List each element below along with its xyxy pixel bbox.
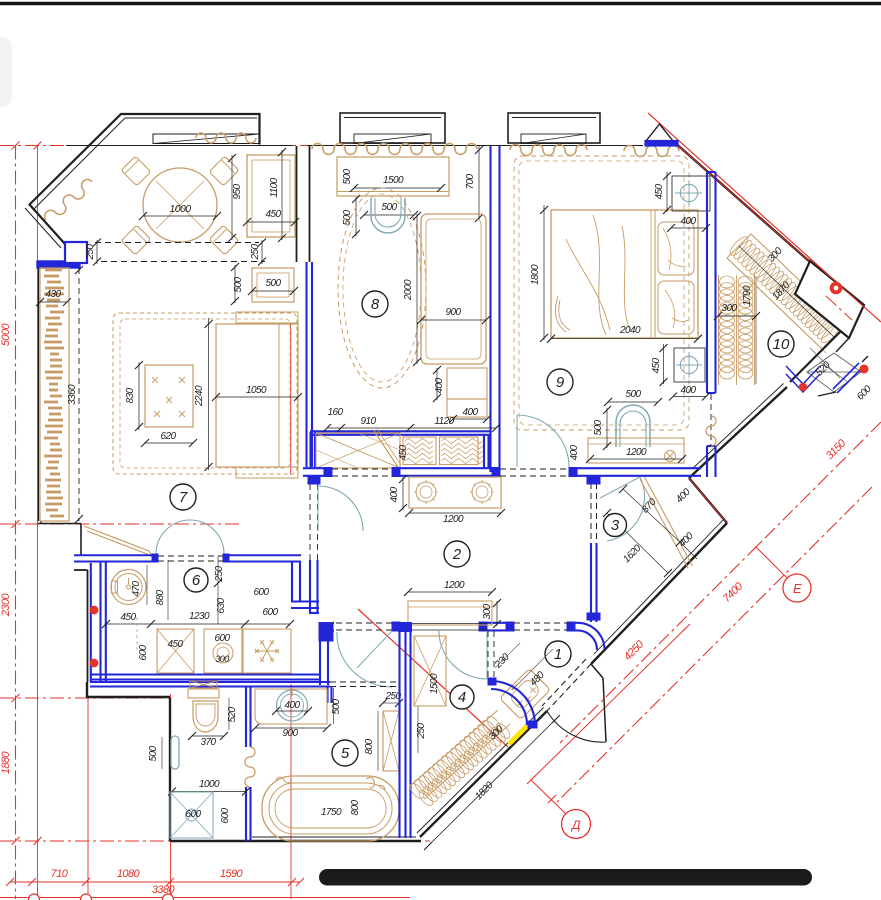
svg-text:7: 7 bbox=[179, 489, 188, 506]
svg-text:500: 500 bbox=[342, 210, 353, 226]
svg-text:1000: 1000 bbox=[199, 779, 220, 790]
svg-text:300: 300 bbox=[721, 303, 737, 314]
svg-text:400: 400 bbox=[680, 385, 696, 396]
svg-text:1750: 1750 bbox=[321, 807, 342, 818]
svg-text:2240: 2240 bbox=[194, 385, 205, 407]
svg-text:600: 600 bbox=[138, 645, 149, 661]
svg-text:Е: Е bbox=[793, 581, 802, 596]
svg-text:500: 500 bbox=[381, 202, 397, 213]
svg-text:1120: 1120 bbox=[434, 416, 454, 427]
svg-text:1790: 1790 bbox=[742, 285, 753, 306]
svg-text:600: 600 bbox=[220, 808, 231, 824]
svg-text:450: 450 bbox=[167, 639, 183, 650]
svg-text:400: 400 bbox=[389, 487, 400, 503]
svg-text:910: 910 bbox=[360, 416, 376, 427]
svg-text:470: 470 bbox=[131, 581, 142, 597]
svg-text:450: 450 bbox=[654, 184, 665, 200]
svg-text:500: 500 bbox=[331, 699, 342, 715]
svg-text:250: 250 bbox=[85, 244, 96, 261]
svg-text:370: 370 bbox=[200, 737, 216, 748]
svg-text:500: 500 bbox=[148, 746, 159, 762]
svg-text:Д: Д bbox=[570, 818, 581, 832]
svg-text:600: 600 bbox=[253, 587, 269, 598]
svg-text:2: 2 bbox=[452, 546, 462, 563]
svg-text:1500: 1500 bbox=[429, 673, 440, 694]
svg-text:1: 1 bbox=[554, 646, 562, 663]
svg-text:400: 400 bbox=[462, 407, 478, 418]
svg-text:450: 450 bbox=[265, 209, 281, 220]
svg-text:1100: 1100 bbox=[269, 177, 280, 197]
svg-text:3360: 3360 bbox=[67, 384, 78, 405]
svg-text:400: 400 bbox=[680, 216, 696, 227]
svg-text:1200: 1200 bbox=[443, 514, 464, 525]
svg-text:1080: 1080 bbox=[117, 868, 141, 880]
svg-text:710: 710 bbox=[51, 868, 69, 880]
svg-text:700: 700 bbox=[465, 174, 476, 190]
svg-text:250: 250 bbox=[416, 723, 427, 740]
svg-text:2040: 2040 bbox=[619, 325, 641, 336]
svg-text:250: 250 bbox=[250, 244, 261, 261]
svg-text:500: 500 bbox=[342, 169, 353, 185]
svg-text:9: 9 bbox=[556, 374, 565, 391]
svg-text:300: 300 bbox=[215, 654, 229, 664]
svg-text:5: 5 bbox=[341, 745, 350, 762]
svg-text:6: 6 bbox=[192, 572, 201, 589]
svg-text:1230: 1230 bbox=[189, 611, 210, 622]
svg-text:450: 450 bbox=[398, 445, 409, 461]
svg-text:160: 160 bbox=[327, 407, 343, 418]
svg-text:900: 900 bbox=[282, 728, 298, 739]
svg-text:630: 630 bbox=[216, 598, 227, 614]
svg-text:8: 8 bbox=[371, 296, 380, 313]
svg-text:520: 520 bbox=[227, 707, 238, 723]
svg-text:500: 500 bbox=[265, 278, 281, 289]
svg-text:900: 900 bbox=[445, 307, 461, 318]
svg-text:2000: 2000 bbox=[403, 279, 414, 301]
svg-text:1000: 1000 bbox=[169, 203, 191, 215]
svg-text:1880: 1880 bbox=[0, 750, 12, 774]
svg-text:880: 880 bbox=[155, 590, 166, 606]
svg-text:250: 250 bbox=[214, 566, 225, 583]
svg-text:1200: 1200 bbox=[444, 580, 465, 591]
svg-text:400: 400 bbox=[569, 445, 580, 461]
svg-text:430: 430 bbox=[45, 289, 61, 300]
svg-text:1800: 1800 bbox=[530, 264, 541, 285]
svg-text:950: 950 bbox=[232, 184, 243, 200]
svg-text:600: 600 bbox=[262, 607, 278, 618]
svg-text:600: 600 bbox=[214, 633, 230, 644]
svg-text:400: 400 bbox=[284, 700, 300, 711]
svg-text:620: 620 bbox=[160, 431, 176, 442]
svg-text:1590: 1590 bbox=[220, 868, 244, 880]
svg-text:400: 400 bbox=[434, 378, 445, 394]
svg-text:5000: 5000 bbox=[0, 322, 12, 346]
svg-text:830: 830 bbox=[125, 388, 136, 404]
svg-text:1050: 1050 bbox=[246, 385, 267, 396]
svg-text:500: 500 bbox=[625, 389, 641, 400]
svg-text:500: 500 bbox=[593, 420, 604, 436]
svg-text:800: 800 bbox=[364, 739, 375, 755]
svg-text:500: 500 bbox=[233, 277, 244, 293]
svg-text:1500: 1500 bbox=[383, 175, 404, 186]
svg-text:300: 300 bbox=[482, 604, 493, 620]
svg-text:450: 450 bbox=[120, 612, 136, 623]
svg-text:450: 450 bbox=[651, 358, 662, 374]
svg-text:10: 10 bbox=[773, 336, 790, 353]
svg-text:800: 800 bbox=[350, 800, 361, 816]
svg-text:3380: 3380 bbox=[152, 884, 176, 896]
svg-text:1200: 1200 bbox=[626, 447, 647, 458]
svg-text:2300: 2300 bbox=[0, 592, 12, 617]
svg-text:4: 4 bbox=[458, 689, 466, 706]
svg-text:600: 600 bbox=[185, 809, 201, 820]
svg-text:3: 3 bbox=[611, 517, 620, 534]
